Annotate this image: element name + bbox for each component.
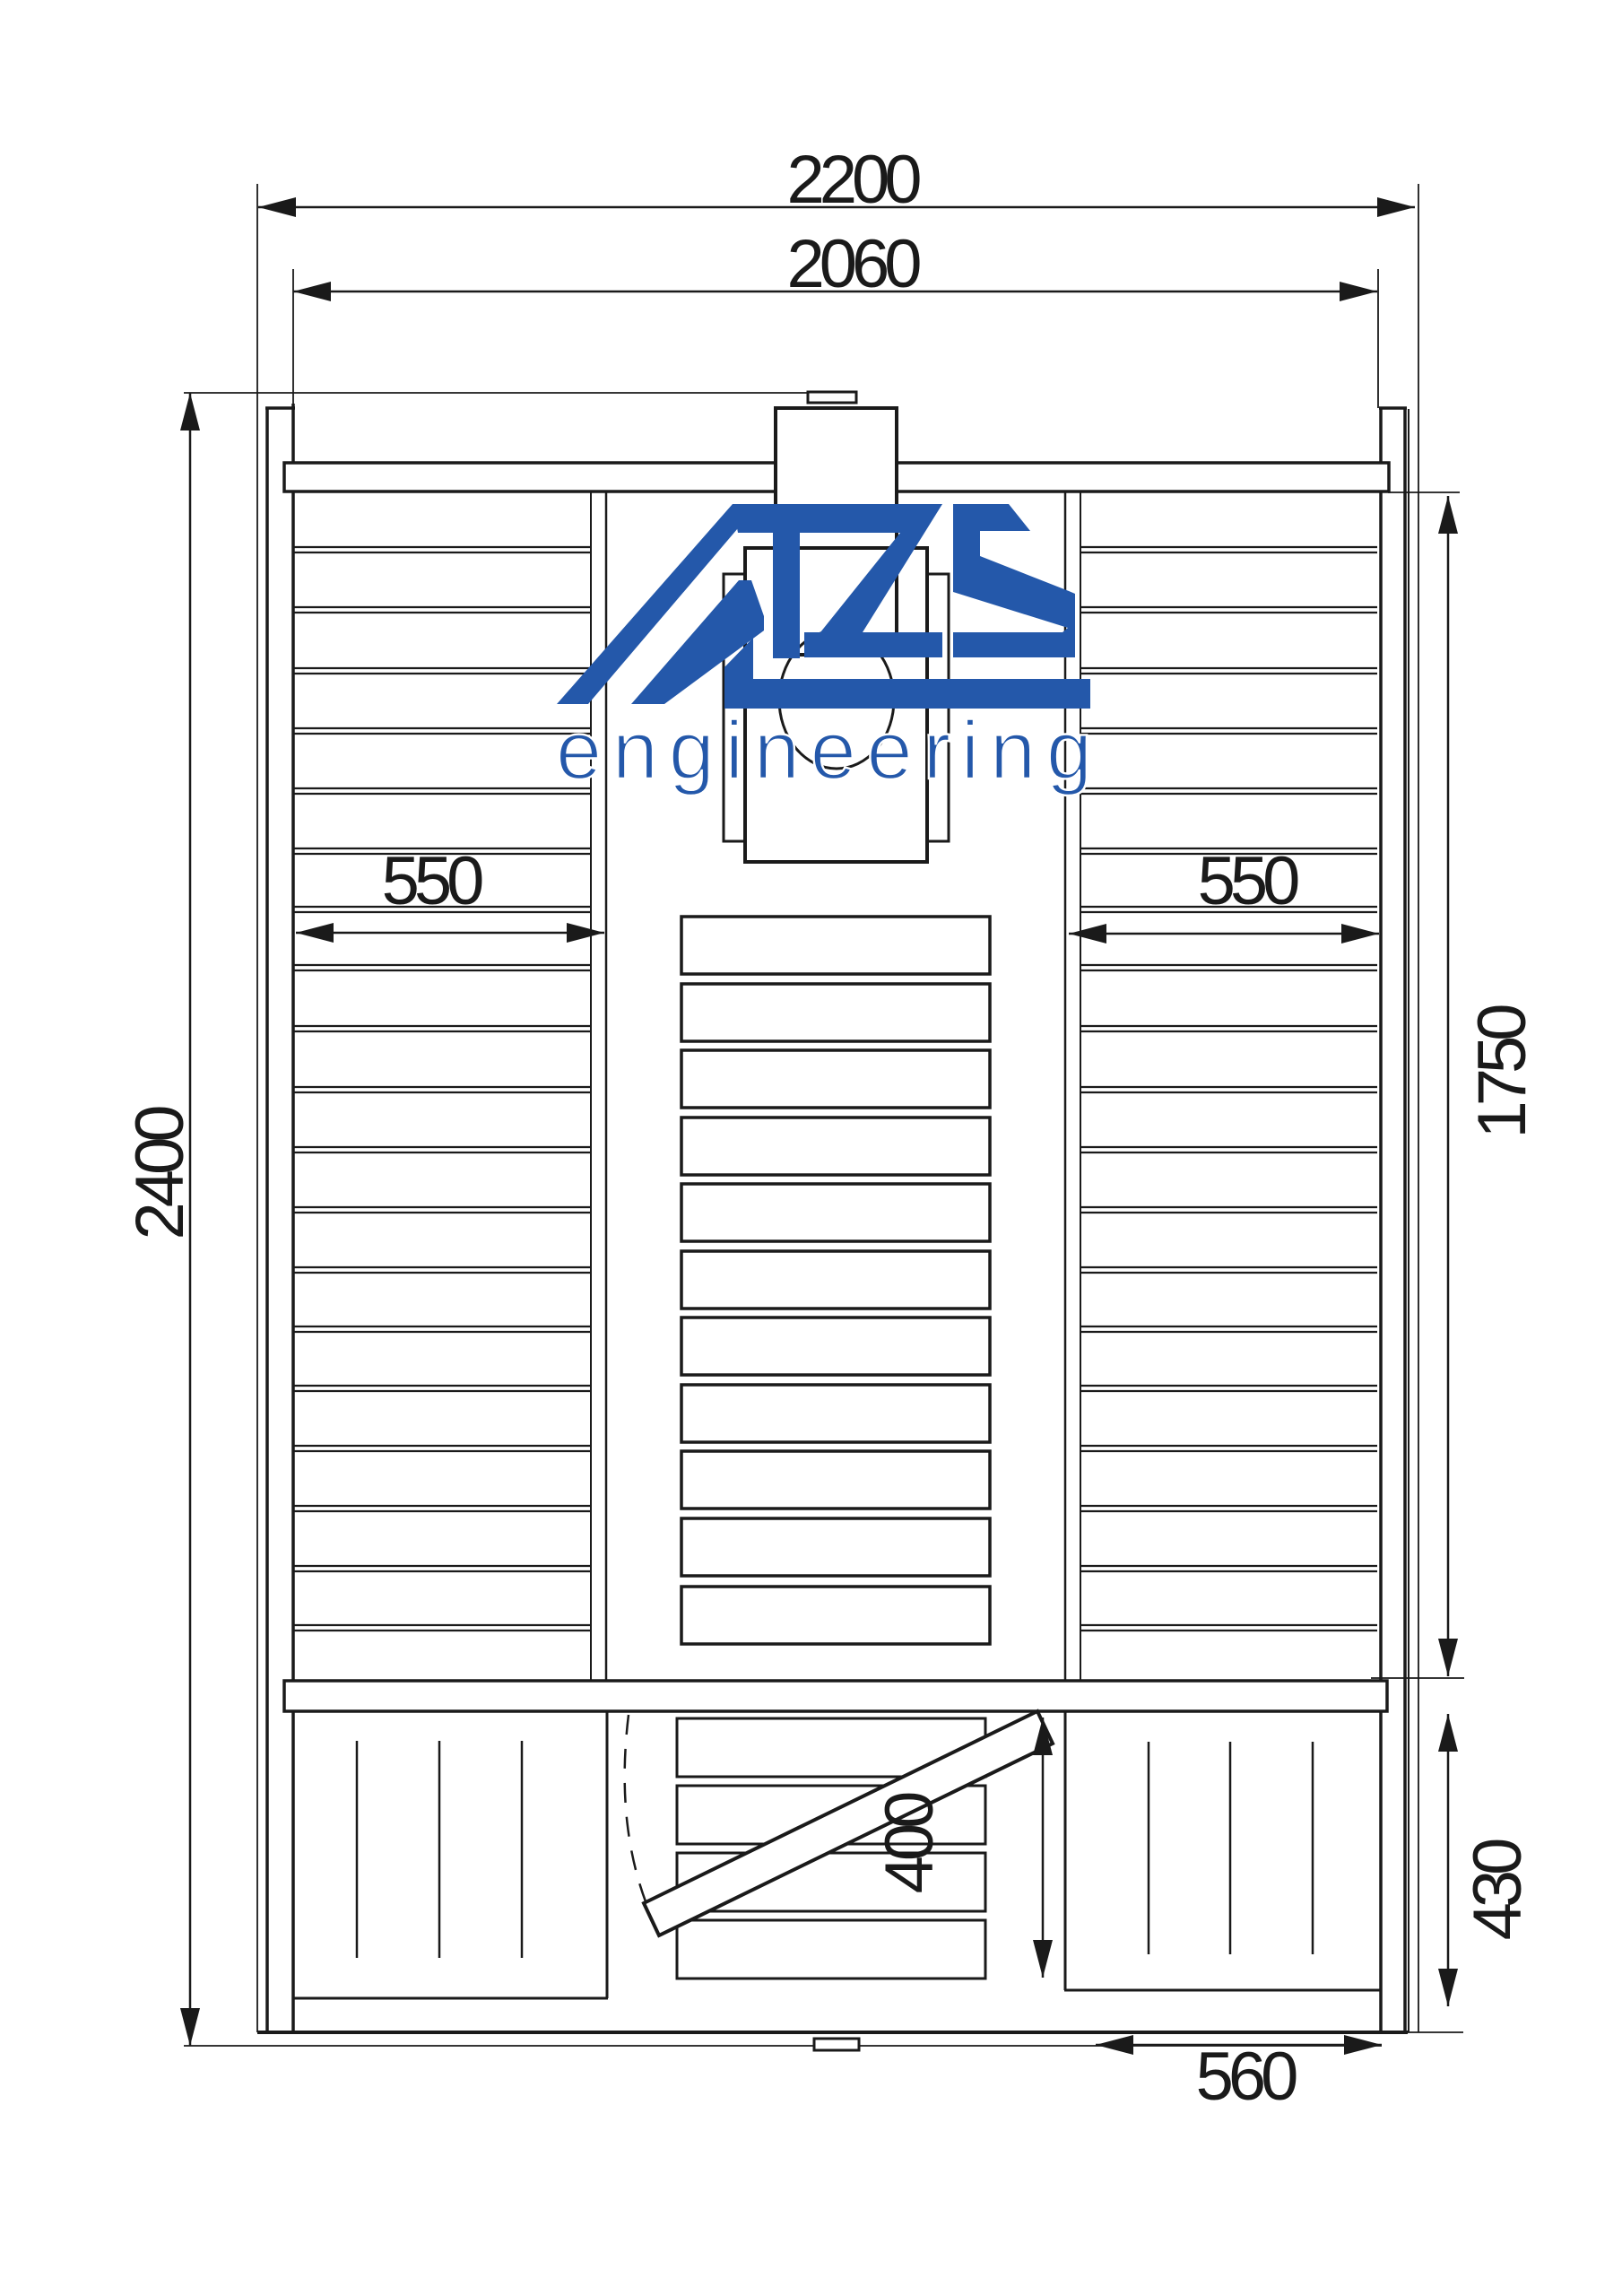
svg-text:engineering: engineering: [556, 705, 1092, 796]
svg-text:2200: 2200: [786, 142, 920, 218]
svg-text:400: 400: [872, 1793, 948, 1894]
svg-text:550: 550: [382, 843, 483, 919]
svg-text:1750: 1750: [1464, 1005, 1540, 1139]
svg-text:430: 430: [1460, 1839, 1536, 1941]
svg-text:2400: 2400: [122, 1107, 198, 1240]
svg-text:2060: 2060: [786, 226, 920, 302]
svg-text:550: 550: [1198, 843, 1299, 919]
svg-text:560: 560: [1196, 2039, 1297, 2115]
